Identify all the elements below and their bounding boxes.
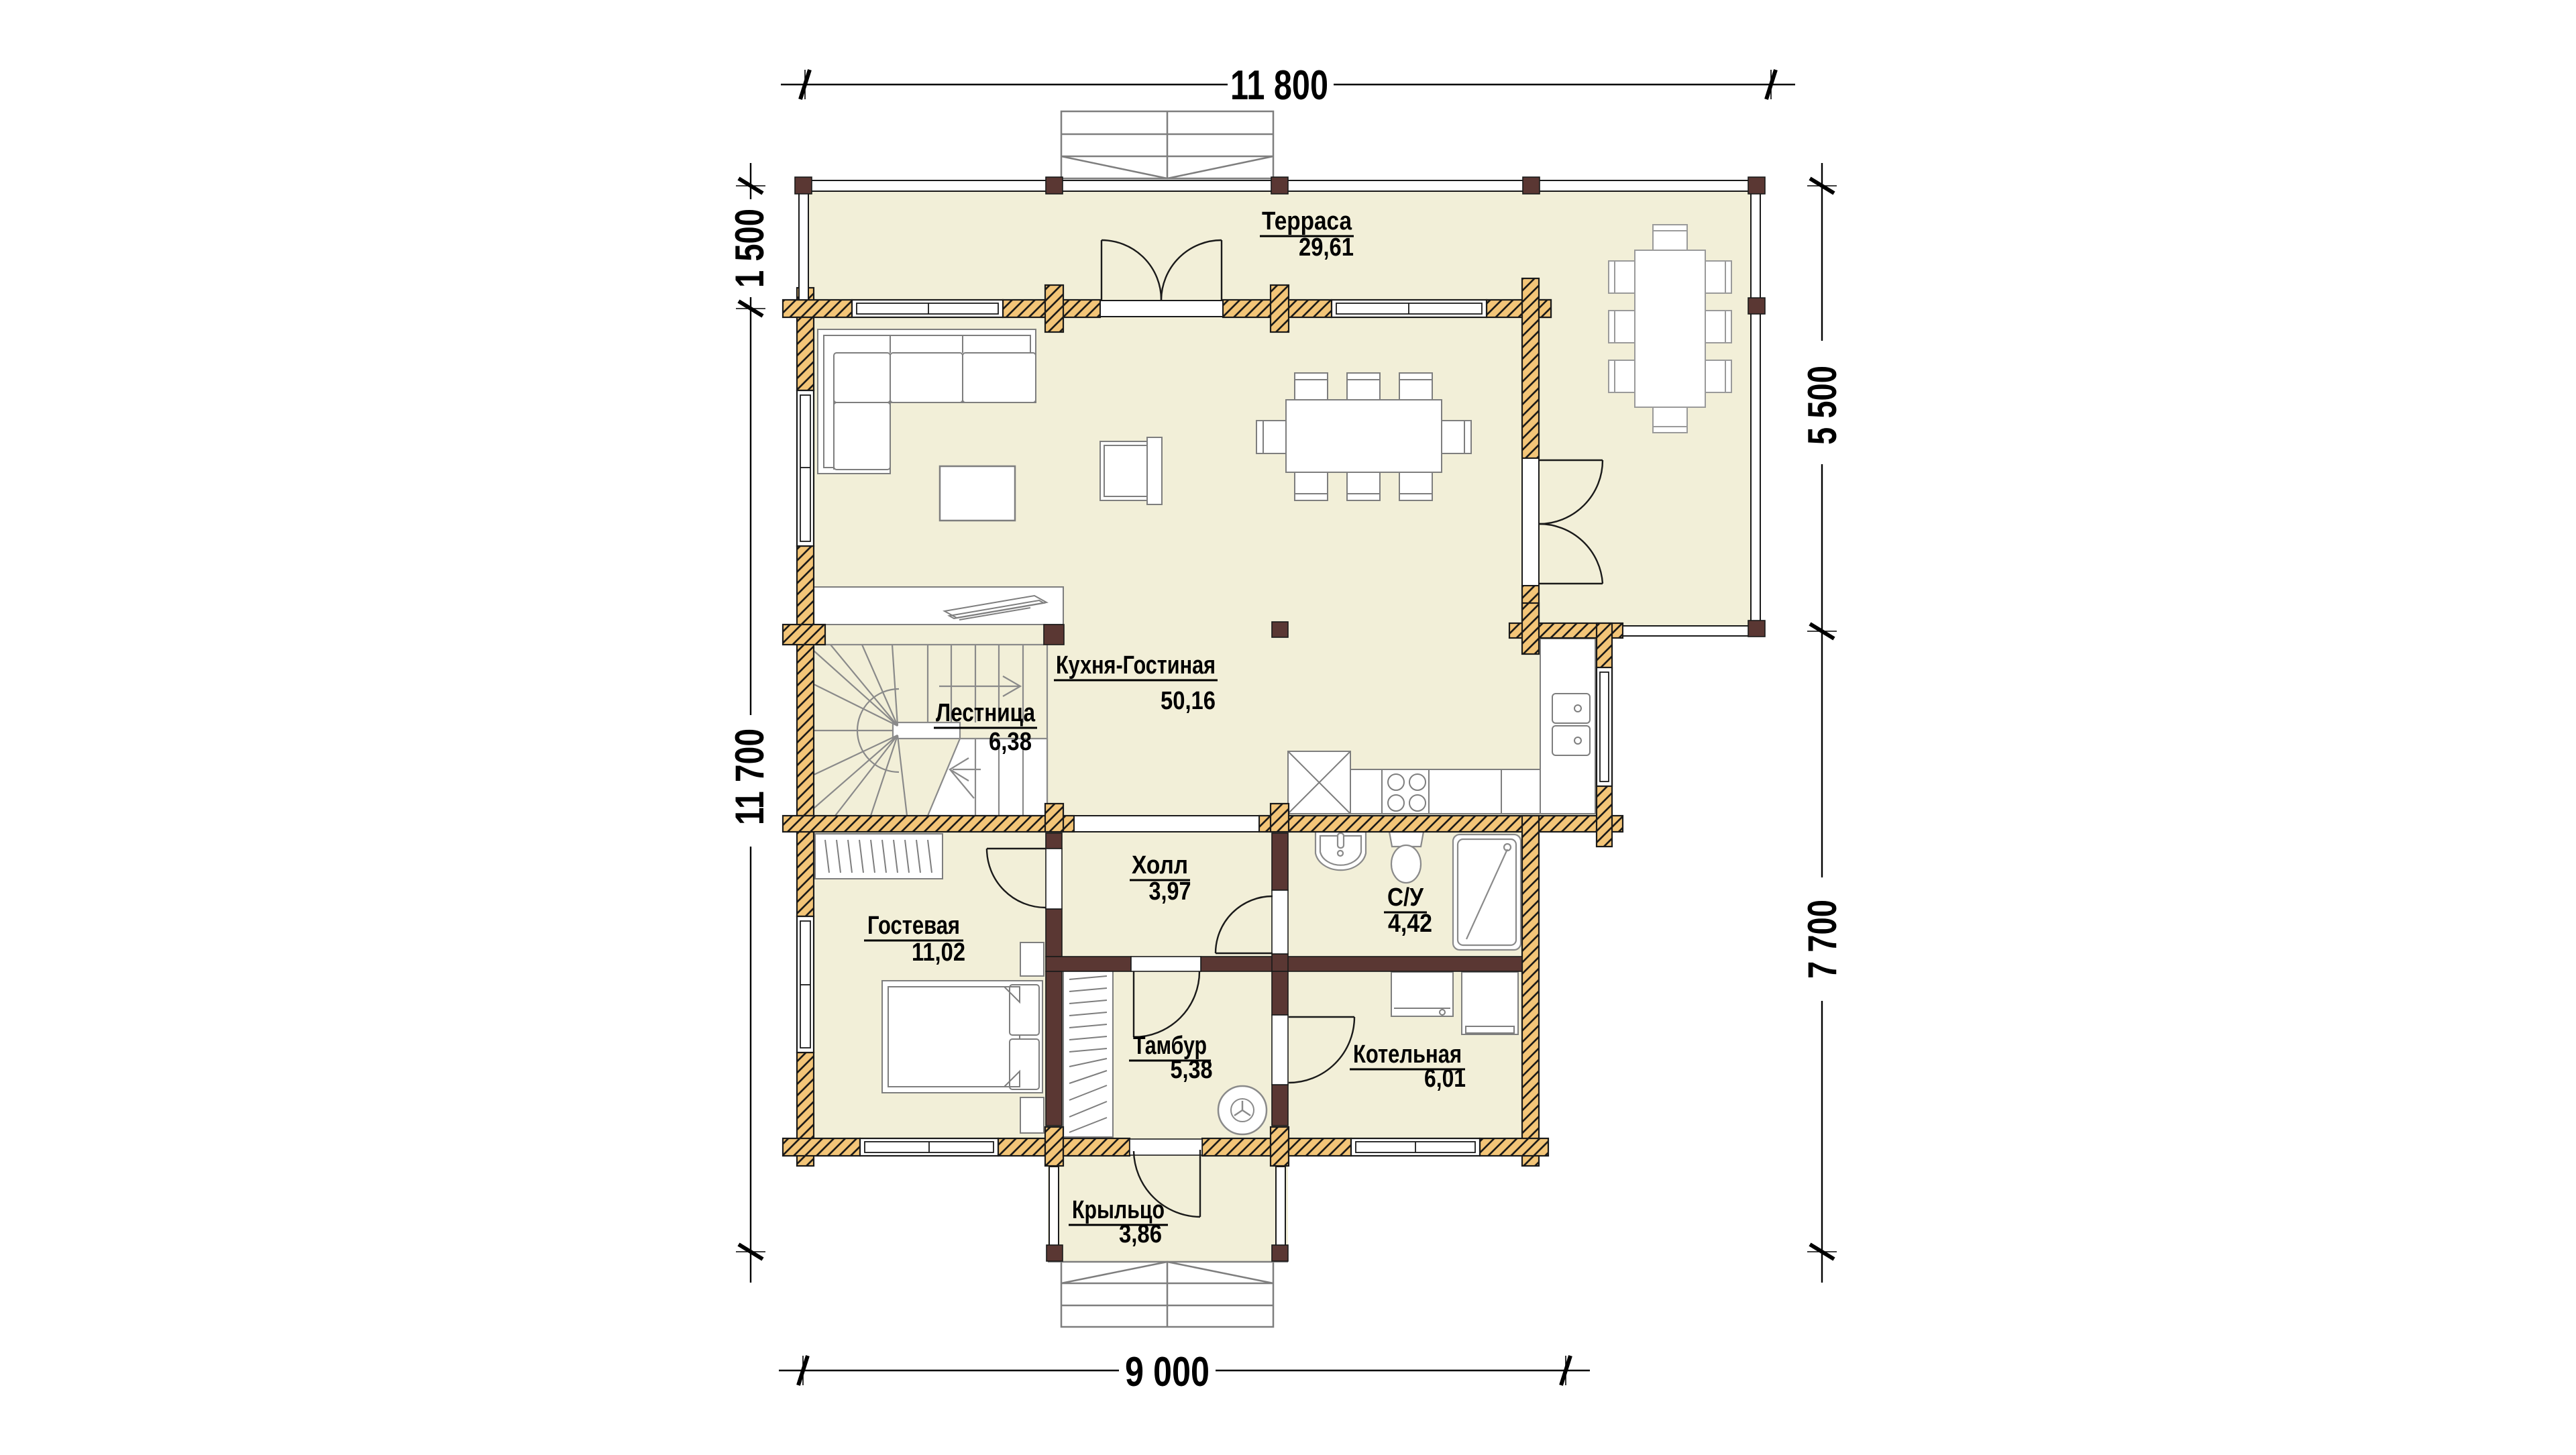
- svg-text:9 000: 9 000: [1125, 1349, 1210, 1395]
- svg-text:11 700: 11 700: [727, 729, 772, 825]
- svg-text:Гостевая: Гостевая: [867, 912, 960, 940]
- svg-text:6,01: 6,01: [1424, 1065, 1466, 1093]
- svg-text:6,38: 6,38: [989, 728, 1032, 756]
- svg-text:5 500: 5 500: [1800, 366, 1845, 445]
- svg-text:3,97: 3,97: [1149, 877, 1191, 906]
- svg-text:29,61: 29,61: [1299, 233, 1354, 262]
- svg-text:11,02: 11,02: [912, 938, 965, 967]
- svg-text:11 800: 11 800: [1230, 62, 1328, 109]
- svg-text:С/У: С/У: [1387, 883, 1424, 912]
- svg-text:50,16: 50,16: [1161, 687, 1216, 715]
- svg-text:Холл: Холл: [1132, 851, 1188, 879]
- svg-text:1 500: 1 500: [727, 209, 772, 288]
- svg-text:3,86: 3,86: [1119, 1220, 1162, 1248]
- svg-text:Лестница: Лестница: [936, 699, 1036, 727]
- svg-text:Кухня-Гостиная: Кухня-Гостиная: [1056, 651, 1216, 680]
- svg-text:5,38: 5,38: [1171, 1056, 1213, 1084]
- svg-text:Терраса: Терраса: [1262, 207, 1352, 235]
- svg-text:4,42: 4,42: [1388, 910, 1432, 938]
- svg-text:7 700: 7 700: [1800, 900, 1845, 979]
